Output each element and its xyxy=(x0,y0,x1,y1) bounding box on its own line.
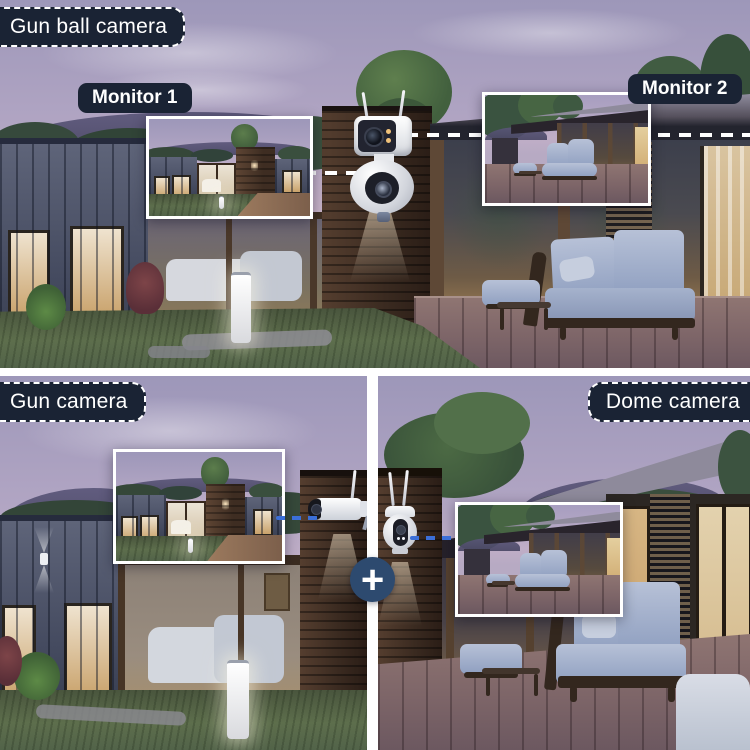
metal-building xyxy=(275,159,310,196)
wall-sconce-beam xyxy=(34,565,54,593)
gun-lens-icon xyxy=(364,127,384,147)
product-collage: Gun ball camera Monitor 1 Monitor 2 xyxy=(0,0,750,750)
lit-window xyxy=(282,170,302,194)
plus-icon: + xyxy=(350,557,395,602)
antenna-icon xyxy=(350,470,356,500)
monitor-1-tag: Monitor 1 xyxy=(78,83,192,113)
connector-gun-camera-to-inset xyxy=(276,516,318,520)
curtain xyxy=(704,146,750,302)
dome-camera-inset xyxy=(455,502,623,617)
chair-leg xyxy=(672,326,678,340)
gun-ball-camera-tag: Gun ball camera xyxy=(0,7,185,47)
table-leg xyxy=(534,674,538,696)
picture-frame xyxy=(264,573,290,611)
gun-camera-tag-text: Gun camera xyxy=(10,390,128,413)
green-plant xyxy=(26,284,66,330)
dual-lens-gun-ball-camera-icon xyxy=(344,90,424,222)
lounge-chair-seat xyxy=(542,163,597,177)
lens-glass xyxy=(311,504,322,515)
top-panel-gun-ball-camera: Gun ball camera Monitor 1 Monitor 2 xyxy=(0,0,750,368)
side-table xyxy=(497,302,551,308)
side-table xyxy=(482,668,540,674)
gun-ball-camera-tag-text: Gun ball camera xyxy=(10,15,167,38)
plus-symbol: + xyxy=(361,560,384,600)
glass-low-wall xyxy=(492,138,518,166)
monitor-2-view xyxy=(485,95,648,203)
tree-canopy xyxy=(434,392,530,454)
wood-post xyxy=(446,558,454,666)
dome-camera-face xyxy=(365,172,399,204)
stone-path xyxy=(148,346,210,358)
dome-lens-icon xyxy=(375,181,392,198)
wall-sconce xyxy=(251,158,258,172)
dome-camera-ball xyxy=(350,160,414,214)
chair-leg xyxy=(560,326,566,340)
dome-camera-face xyxy=(393,519,408,546)
bollard-light xyxy=(188,538,193,553)
lounge-chair-cushion xyxy=(618,582,680,652)
interior-bed xyxy=(202,179,221,192)
dome-camera-view xyxy=(458,505,620,614)
gun-camera-inset xyxy=(113,449,285,564)
bottom-right-panel-dome-camera: Dome camera xyxy=(378,376,750,750)
lit-interior xyxy=(700,146,750,302)
side-table xyxy=(519,171,542,174)
monitor-1-view xyxy=(149,119,310,216)
lit-window xyxy=(64,603,112,701)
table-leg xyxy=(544,308,548,330)
dome-camera-tag: Dome camera xyxy=(588,382,750,422)
bottom-left-panel-gun-camera: Gun camera xyxy=(0,376,367,750)
chair-leg xyxy=(668,686,675,702)
dome-camera-ball xyxy=(383,514,417,550)
monitor-2-tag-text: Monitor 2 xyxy=(642,78,728,99)
antenna-icon xyxy=(402,470,409,506)
ir-led-icon xyxy=(386,129,391,134)
connector-dome-camera-to-inset xyxy=(410,536,456,540)
monitor-2-inset xyxy=(482,92,651,206)
camera-mount xyxy=(377,212,390,222)
dome-ptz-camera-icon xyxy=(378,470,424,562)
wall-sconce-beam xyxy=(34,527,54,553)
throw-pillow xyxy=(582,614,616,638)
gun-camera-head xyxy=(354,116,412,156)
dome-lens-icon xyxy=(396,525,406,535)
glass-low-wall xyxy=(464,549,490,577)
wall-sconce xyxy=(222,496,229,512)
bollard-light xyxy=(219,196,224,210)
camera-mount xyxy=(360,501,367,517)
ir-led-icon xyxy=(397,537,400,540)
gun-bullet-camera-icon xyxy=(308,470,367,536)
metal-building xyxy=(149,157,197,199)
cloud xyxy=(410,8,690,58)
monitor-1-tag-text: Monitor 1 xyxy=(92,87,178,108)
interior-sofa xyxy=(214,615,284,683)
metal-building xyxy=(116,495,166,542)
dome-camera-tag-text: Dome camera xyxy=(606,390,740,413)
lounge-chair-seat xyxy=(545,288,695,322)
lit-window xyxy=(70,226,124,320)
wall-sconce xyxy=(40,553,48,565)
metal-building xyxy=(0,138,148,338)
table-leg xyxy=(500,308,504,330)
wood-post xyxy=(430,140,444,302)
monitor-1-inset xyxy=(146,116,313,219)
red-shrub xyxy=(126,262,164,314)
gun-camera-face xyxy=(358,120,396,152)
lit-window xyxy=(253,509,273,536)
chair-leg xyxy=(570,686,577,702)
white-armchair xyxy=(676,674,750,750)
monitor-2-tag: Monitor 2 xyxy=(628,74,742,104)
lounge-chair-seat xyxy=(515,574,570,588)
gun-camera-view xyxy=(116,452,282,561)
bollard-light xyxy=(227,660,249,739)
chair-base xyxy=(542,176,597,180)
camera-base xyxy=(392,548,408,554)
chair-base xyxy=(515,587,570,591)
table-leg xyxy=(486,674,490,696)
interior-bed xyxy=(171,520,191,535)
side-table xyxy=(492,581,515,584)
antenna-icon xyxy=(388,472,395,506)
gun-camera-tag: Gun camera xyxy=(0,382,146,422)
bollard-light xyxy=(231,272,251,343)
lounge-chair-cushion xyxy=(614,230,684,296)
